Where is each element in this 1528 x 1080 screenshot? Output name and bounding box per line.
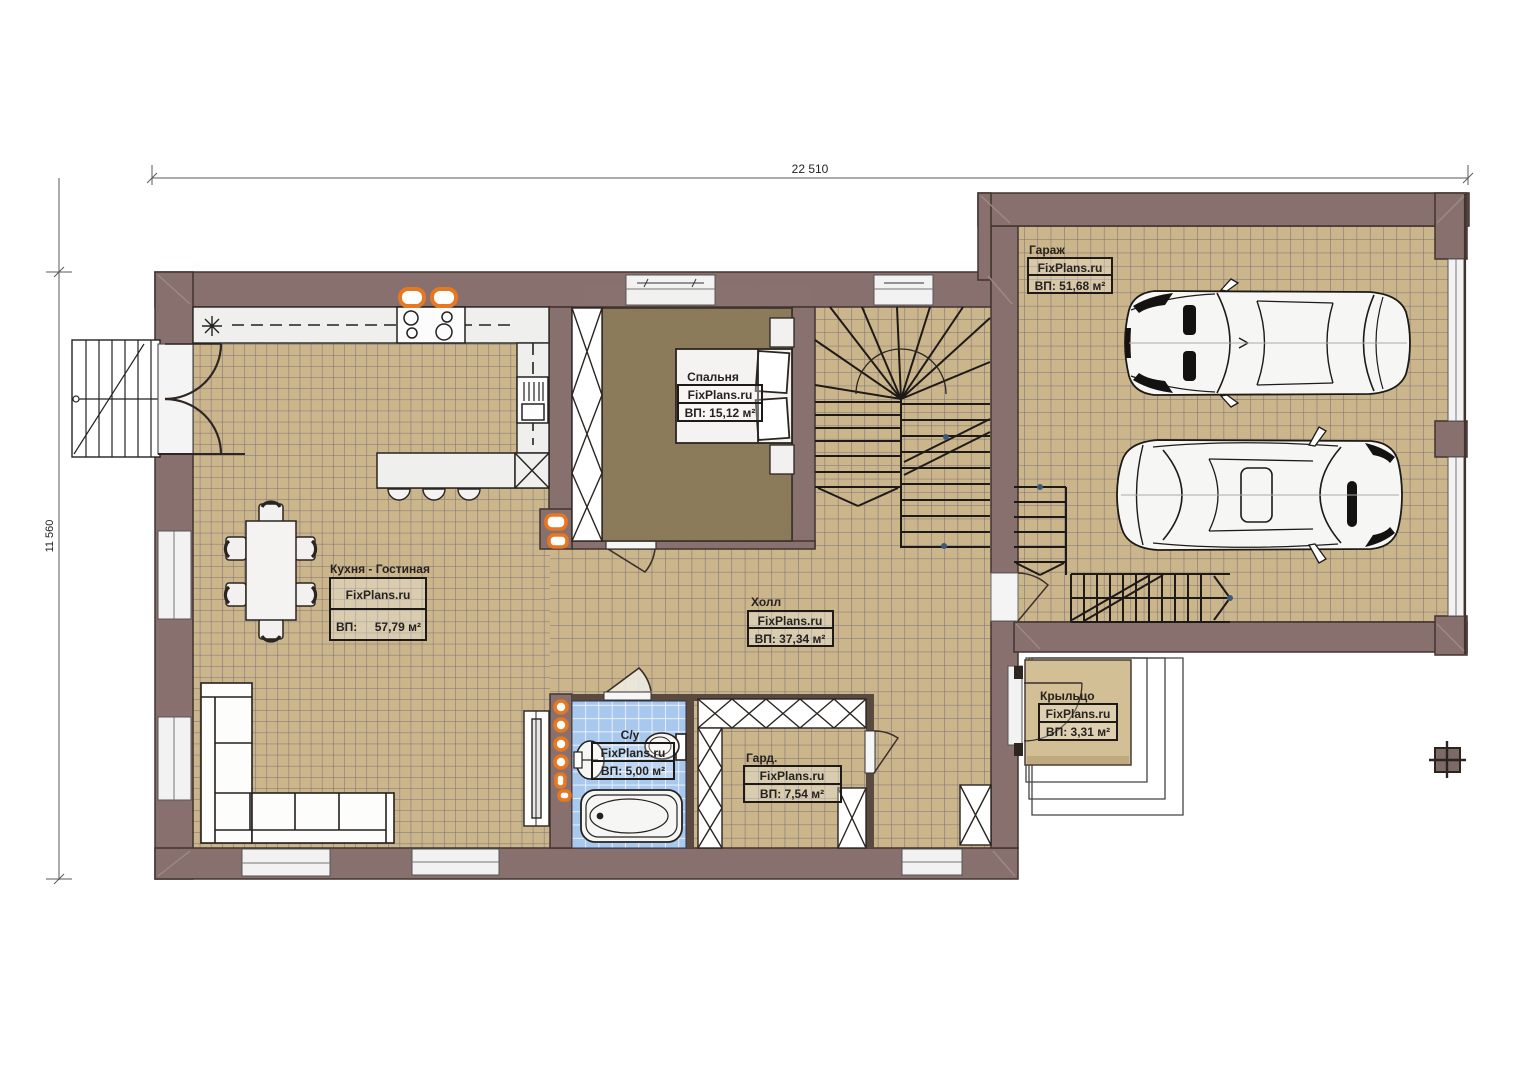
svg-text:ВП: 3,31 м²: ВП: 3,31 м² (1046, 725, 1110, 739)
svg-text:57,79 м²: 57,79 м² (375, 620, 421, 634)
svg-text:22 510: 22 510 (792, 162, 829, 176)
svg-text:FixPlans.ru: FixPlans.ru (346, 588, 411, 602)
svg-text:11 560: 11 560 (44, 520, 56, 553)
svg-text:ВП: 37,34 м²: ВП: 37,34 м² (755, 632, 826, 646)
svg-text:ВП: 7,54 м²: ВП: 7,54 м² (760, 787, 824, 801)
svg-text:ВП: 5,00 м²: ВП: 5,00 м² (601, 764, 665, 778)
svg-text:ВП: 15,12 м²: ВП: 15,12 м² (685, 406, 756, 420)
svg-text:Крыльцо: Крыльцо (1040, 689, 1095, 703)
svg-text:FixPlans.ru: FixPlans.ru (688, 388, 753, 402)
svg-text:FixPlans.ru: FixPlans.ru (758, 614, 823, 628)
svg-text:Холл: Холл (751, 595, 781, 609)
svg-text:Кухня - Гостиная: Кухня - Гостиная (330, 562, 430, 576)
svg-text:FixPlans.ru: FixPlans.ru (601, 746, 666, 760)
svg-text:FixPlans.ru: FixPlans.ru (1038, 261, 1103, 275)
svg-text:FixPlans.ru: FixPlans.ru (1046, 707, 1111, 721)
svg-text:Гард.: Гард. (746, 751, 777, 765)
svg-text:Гараж: Гараж (1029, 243, 1065, 257)
svg-text:FixPlans.ru: FixPlans.ru (760, 769, 825, 783)
svg-text:С/у: С/у (621, 728, 640, 742)
svg-text:ВП:: ВП: (336, 620, 357, 634)
svg-text:Спальня: Спальня (687, 370, 739, 384)
svg-text:ВП: 51,68 м²: ВП: 51,68 м² (1035, 279, 1106, 293)
